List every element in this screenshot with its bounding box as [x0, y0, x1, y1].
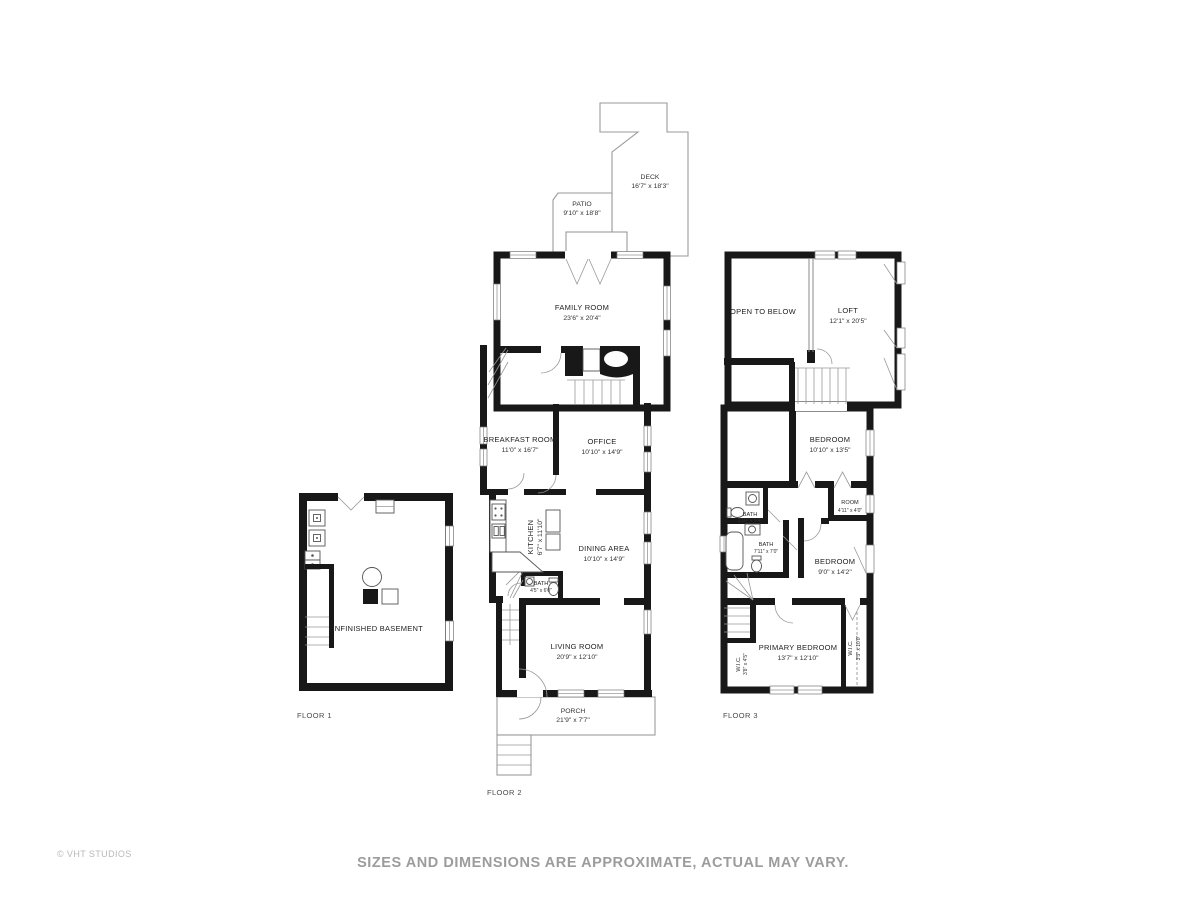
washer-icon	[309, 510, 325, 526]
loft-label: LOFT	[838, 306, 858, 315]
basement-label: UNFINISHED BASEMENT	[329, 624, 423, 633]
dining-area-dims: 10'10" x 14'9"	[583, 556, 625, 563]
open-to-below-label: OPEN TO BELOW	[730, 307, 797, 316]
water-heater-icon	[363, 568, 382, 587]
deck-label: DECK	[641, 174, 660, 181]
primary-bedroom-label: PRIMARY BEDROOM	[759, 643, 838, 652]
dining-area-label: DINING AREA	[578, 544, 629, 553]
floor1-plan: UNFINISHED BASEMENT FLOOR 1	[297, 493, 454, 720]
floor3-label: FLOOR 3	[723, 711, 758, 720]
wic-left-dims: 3'8" x 4'5"	[743, 653, 749, 675]
family-room-walls	[497, 255, 667, 408]
bedroom2-label: BEDROOM	[815, 557, 856, 566]
bath-dims: 4'5" x 6'0"	[530, 588, 552, 594]
deck-dims: 16'7" x 18'3"	[631, 183, 669, 190]
utility-box-icon	[382, 589, 398, 604]
toilet-icon	[727, 508, 731, 517]
range-icon	[492, 504, 505, 520]
floor2-plan: DECK 16'7" x 18'3" PATIO 9'10" x 18'8" F…	[480, 103, 688, 797]
primary-bedroom-dims: 13'7" x 12'10"	[777, 655, 819, 662]
toilet-icon	[549, 578, 558, 582]
bath-main-label: BATH	[759, 542, 774, 548]
porch-outline	[497, 697, 655, 735]
kitchen-dims: 6'7" x 11'10"	[537, 518, 544, 555]
bedroom1-dims: 10'10" x 13'5"	[809, 447, 851, 454]
bath-label: BATH	[534, 581, 549, 587]
toilet-icon	[752, 556, 761, 560]
stairs-to-basement	[502, 604, 519, 645]
living-room-label: LIVING ROOM	[551, 642, 604, 651]
room-label: ROOM	[841, 500, 859, 506]
chimney	[376, 500, 394, 513]
bedroom2-dims: 9'0" x 14'2"	[818, 569, 852, 576]
breakfast-room-label: BREAKFAST ROOM	[484, 435, 557, 444]
bathtub-icon	[726, 532, 743, 570]
copyright-text: © VHT STUDIOS	[57, 849, 132, 859]
furnace-icon	[363, 589, 378, 604]
wic-right-label: W.I.C.	[848, 640, 854, 656]
breakfast-room-dims: 11'0" x 16'7"	[502, 447, 539, 454]
floor3-plan: OPEN TO BELOW LOFT 12'1" x 20'5" BEDROOM…	[720, 251, 905, 720]
kitchen-label: KITCHEN	[526, 520, 535, 555]
wic-right-dims: 3'5" x 10'0"	[856, 635, 862, 660]
kitchen-counter	[490, 500, 560, 572]
bath-small-dims: 3'10" x 5'4"	[738, 518, 763, 524]
living-room-dims: 20'9" x 12'10"	[556, 654, 598, 661]
loft-dims: 12'1" x 20'5"	[829, 318, 867, 325]
bedroom1-label: BEDROOM	[810, 435, 851, 444]
office-dims: 10'10" x 14'9"	[581, 449, 623, 456]
bath-main-dims: 7'11" x 7'0"	[754, 549, 778, 555]
dryer-icon	[309, 530, 325, 546]
wic-left-label: W.I.C.	[736, 656, 742, 672]
patio-label: PATIO	[572, 201, 591, 208]
family-room-label: FAMILY ROOM	[555, 303, 609, 312]
room-dims: 4'11" x 4'0"	[838, 508, 862, 514]
disclaimer-text: SIZES AND DIMENSIONS ARE APPROXIMATE, AC…	[357, 855, 849, 871]
office-label: OFFICE	[588, 437, 617, 446]
patio-dims: 9'10" x 18'8"	[563, 210, 601, 217]
porch-dims: 21'9" x 7'7"	[556, 717, 590, 724]
floor2-label: FLOOR 2	[487, 788, 522, 797]
floorplan-canvas: DECK 16'7" x 18'3" PATIO 9'10" x 18'8" F…	[0, 0, 1200, 900]
floor1-label: FLOOR 1	[297, 711, 332, 720]
kitchen-peninsula	[492, 552, 543, 572]
porch-label: PORCH	[561, 708, 586, 715]
porch-steps	[497, 735, 531, 775]
family-room-dims: 23'6" x 20'4"	[563, 315, 601, 322]
fridge-icon	[546, 510, 560, 532]
